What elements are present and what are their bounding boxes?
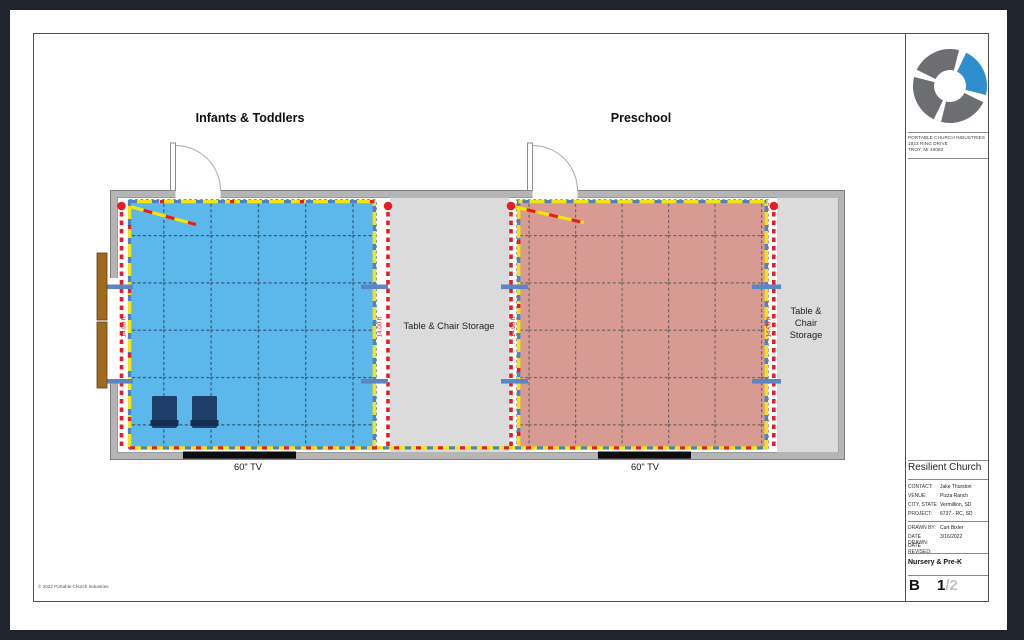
title-block-rule: [908, 521, 988, 522]
tv-label-right: 60" TV: [631, 462, 660, 472]
title-block-rule: [908, 460, 988, 461]
hallway-table: [97, 253, 107, 388]
storage-label-right-line1: Table &: [790, 306, 822, 316]
boundary-dot: [507, 202, 516, 211]
tv-left: [183, 452, 296, 459]
field-label: VENUE:: [908, 493, 940, 499]
drape-measurement: 14.00 ft: [120, 316, 127, 337]
field-value: Curt Bixler: [940, 525, 992, 531]
field-label: PROJECT:: [908, 511, 940, 517]
title-block-rule: [908, 132, 988, 133]
boundary-dot: [770, 202, 779, 211]
sheet-number: 1/2: [937, 577, 958, 594]
boundary-dot: [117, 202, 126, 211]
title-block-rule: [908, 575, 988, 576]
room-title-infants-toddlers: Infants & Toddlers: [196, 111, 305, 125]
sheet-letter: B: [909, 577, 920, 594]
field-label: CITY, STATE:: [908, 502, 940, 508]
room-preschool: [517, 200, 768, 449]
field-venue: VENUE: Pizza Ranch: [908, 493, 992, 499]
field-city-state: CITY, STATE: Vermillion, SD: [908, 502, 992, 508]
tv-right: [598, 452, 691, 459]
storage-label-right-line3: Storage: [790, 330, 823, 340]
door-left: [171, 143, 221, 191]
title-block-rule: [908, 158, 988, 159]
tv-label-left: 60" TV: [234, 462, 263, 472]
title-block-rule: [908, 553, 988, 554]
company-address: PORTABLE CHURCH INDUSTRIES 1923 RING DRI…: [908, 135, 998, 153]
storage-label-center: Table & Chair Storage: [404, 321, 495, 331]
room-title-preschool: Preschool: [611, 111, 671, 125]
sheet-page-total: /2: [945, 577, 958, 594]
drape-measurement: 14.00 ft: [766, 316, 773, 337]
company-city: TROY, MI 48083: [908, 147, 998, 153]
field-label: DRAWN BY:: [908, 525, 940, 531]
company-logo-icon: [908, 44, 993, 130]
field-drawn-by: DRAWN BY: Curt Bixler: [908, 525, 992, 531]
left-wall-opening: [109, 278, 120, 380]
sheet-title: Nursery & Pre-K: [908, 559, 962, 566]
field-contact: CONTACT: Jake Thurston: [908, 484, 992, 490]
client-name: Resilient Church: [908, 462, 992, 473]
storage-label-right-line2: Chair: [795, 318, 817, 328]
field-label: CONTACT:: [908, 484, 940, 490]
field-value: 6737 - RC, SD: [940, 511, 992, 517]
viewer-background: Infants & Toddlers Preschool Table & Cha…: [0, 0, 1024, 640]
field-value: Vermillion, SD: [940, 502, 992, 508]
title-block-rule: [908, 479, 988, 480]
field-value: Jake Thurston: [940, 484, 992, 490]
title-block-separator: [905, 33, 906, 602]
floor-plan: Infants & Toddlers Preschool Table & Cha…: [90, 95, 870, 485]
drape-measurement: 14.00 ft: [510, 316, 517, 337]
door-right: [528, 143, 578, 191]
boundary-dot: [384, 202, 393, 211]
drape-measurement: 14.00 ft: [376, 316, 383, 337]
field-project: PROJECT: 6737 - RC, SD: [908, 511, 992, 517]
field-value: Pizza Ranch: [940, 493, 992, 499]
copyright-text: © 2022 Portable Church Industries: [38, 584, 109, 589]
